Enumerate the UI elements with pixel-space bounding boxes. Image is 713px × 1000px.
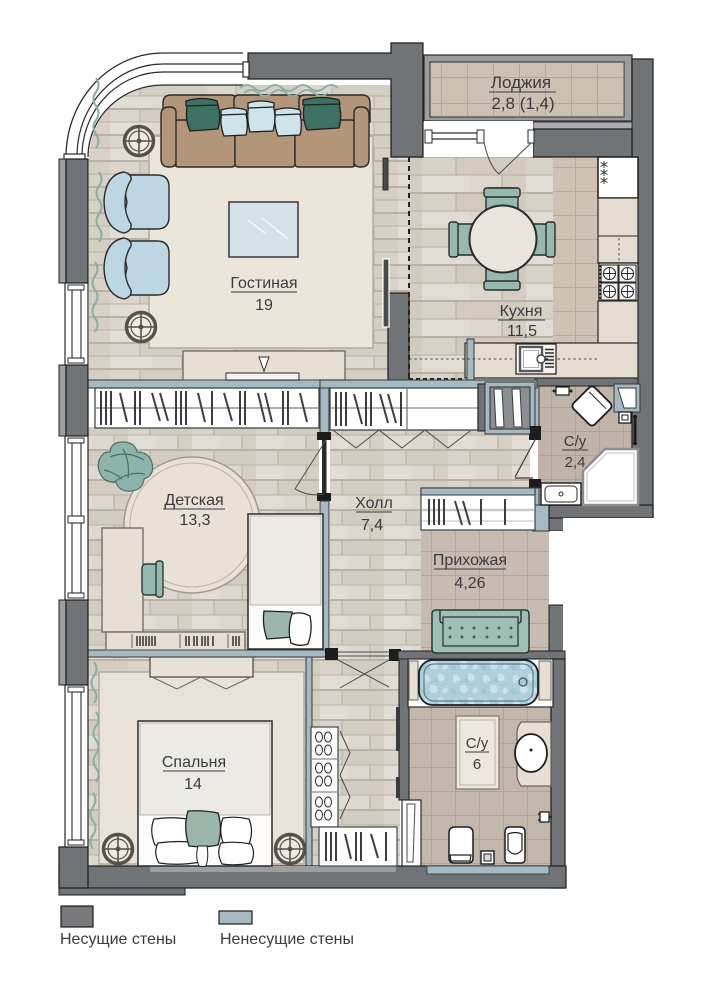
svg-text:2,8 (1,4): 2,8 (1,4) <box>491 94 554 113</box>
svg-text:Гостиная: Гостиная <box>230 275 297 292</box>
svg-text:Ненесущие стены: Ненесущие стены <box>220 931 354 948</box>
svg-text:2,4: 2,4 <box>565 454 586 471</box>
svg-text:Спальня: Спальня <box>162 754 226 771</box>
svg-text:6: 6 <box>473 756 481 773</box>
svg-text:С/у: С/у <box>564 433 587 450</box>
svg-text:13,3: 13,3 <box>179 512 210 529</box>
svg-text:С/у: С/у <box>466 735 489 752</box>
svg-text:Лоджия: Лоджия <box>491 73 551 92</box>
svg-text:14: 14 <box>184 776 202 793</box>
svg-text:19: 19 <box>255 297 273 314</box>
svg-text:7,4: 7,4 <box>361 517 383 534</box>
svg-text:Прихожая: Прихожая <box>433 552 507 569</box>
svg-text:4,26: 4,26 <box>454 575 485 592</box>
svg-text:Кухня: Кухня <box>500 303 543 320</box>
svg-text:Детская: Детская <box>164 492 223 509</box>
svg-text:Несущие стены: Несущие стены <box>60 931 176 948</box>
svg-text:11,5: 11,5 <box>507 323 537 340</box>
svg-text:Холл: Холл <box>355 495 393 512</box>
